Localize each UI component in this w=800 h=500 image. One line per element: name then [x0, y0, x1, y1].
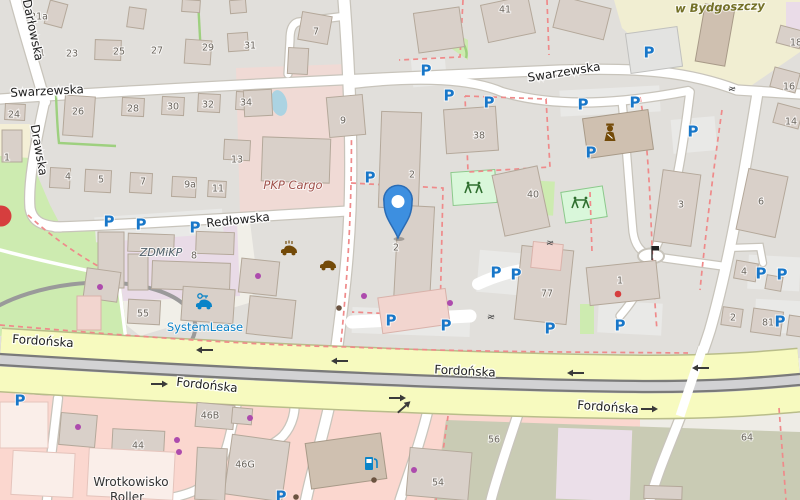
house-number-label: 44	[132, 441, 144, 452]
parking-icon: P	[484, 94, 495, 112]
building	[413, 7, 464, 53]
poi-dot-brown	[371, 477, 377, 483]
parking-icon: P	[444, 87, 455, 105]
parking-icon: P	[777, 266, 788, 284]
house-number-label: 16	[783, 82, 795, 93]
house-number-label: 29	[202, 43, 214, 54]
parking-icon: P	[136, 216, 147, 234]
house-number-label: 25	[113, 47, 125, 58]
parking-icon: P	[511, 266, 522, 284]
house-number-label: 18	[790, 38, 800, 49]
parking-icon: P	[545, 320, 556, 338]
parking-icon: P	[630, 94, 641, 112]
shop-poi-dot	[447, 300, 453, 306]
house-number-label: 1	[4, 153, 10, 164]
poi-dot-brown	[293, 494, 299, 500]
house-number-label: 54	[432, 478, 444, 489]
house-number-label: 26	[72, 107, 84, 118]
building	[406, 447, 472, 500]
house-number-label: 81	[762, 318, 774, 329]
building	[644, 485, 682, 499]
parking-icon: P	[421, 62, 432, 80]
house-number-label: 4	[65, 172, 71, 183]
shop-poi-dot	[174, 437, 180, 443]
house-number-label: 23	[66, 49, 78, 60]
area-label: Roller	[110, 490, 144, 500]
area-label: Wrotkowisko	[93, 475, 168, 489]
house-number-label: 77	[541, 289, 553, 300]
house-number-label: 4	[741, 267, 747, 278]
building	[128, 254, 148, 290]
parking-icon: P	[365, 169, 376, 187]
landuse-area	[580, 304, 594, 334]
building	[182, 0, 201, 13]
building	[77, 296, 101, 330]
house-number-label: 32	[202, 100, 214, 111]
building	[246, 296, 296, 339]
house-number-label: 64	[741, 433, 753, 444]
shop-poi-dot	[75, 424, 81, 430]
house-number-label: 27	[151, 46, 163, 57]
house-number-label: 2	[393, 243, 399, 254]
house-number-label: 6	[758, 197, 764, 208]
shop-poi-dot	[97, 284, 103, 290]
building	[444, 106, 499, 154]
parking-icon: P	[775, 313, 786, 331]
house-number-label: 28	[127, 104, 139, 115]
shop-poi-dot	[361, 293, 367, 299]
house-number-label: 34	[240, 98, 252, 109]
building	[787, 315, 800, 337]
house-number-label: 46B	[201, 411, 220, 422]
parking-icon: P	[276, 488, 287, 500]
area-label: ZDMiKP	[139, 246, 183, 259]
building	[229, 0, 246, 14]
parking-icon: P	[586, 144, 597, 162]
parking-icon: P	[578, 96, 589, 114]
area-label: SystemLease	[167, 320, 243, 334]
house-number-label: 1	[617, 276, 623, 287]
landuse-area	[556, 428, 632, 500]
house-number-label: 11	[212, 184, 224, 195]
house-number-label: 7	[140, 177, 146, 188]
house-number-label: 9a	[184, 180, 196, 191]
house-number-label: 41	[499, 5, 511, 16]
poi-dot-red	[615, 291, 622, 298]
house-number-label: 14	[785, 117, 797, 128]
shop-poi-dot	[255, 273, 261, 279]
house-number-label: 8	[191, 251, 197, 262]
house-number-label: 9	[340, 116, 346, 127]
house-number-label: 31	[244, 41, 256, 52]
building	[196, 231, 235, 254]
house-number-label: 3	[678, 200, 684, 211]
landuse-area	[451, 170, 497, 206]
building	[127, 7, 147, 29]
shop-poi-dot	[411, 467, 417, 473]
house-number-label: 7	[313, 27, 319, 38]
house-number-label: 2	[409, 170, 415, 181]
parking-icon: P	[615, 317, 626, 335]
parking-icon: P	[104, 213, 115, 231]
map-svg: ≠≠≠PPPPPPPPPPPPPPPPPPPPPPP21a21232527293…	[0, 0, 800, 500]
house-number-label: 30	[167, 102, 179, 113]
house-number-label: 2	[730, 313, 736, 324]
area-label: PKP Cargo	[263, 178, 322, 192]
map-canvas[interactable]: ≠≠≠PPPPPPPPPPPPPPPPPPPPPPP21a21232527293…	[0, 0, 800, 500]
shop-poi-dot	[176, 449, 182, 455]
house-number-label: 24	[8, 110, 20, 121]
house-number-label: 13	[231, 155, 243, 166]
parking-icon: P	[644, 44, 655, 62]
house-number-label: 46G	[235, 460, 254, 471]
building	[195, 447, 228, 500]
building	[287, 47, 308, 74]
poi-dot-brown	[336, 305, 342, 311]
building	[261, 137, 330, 183]
house-number-label: 38	[473, 131, 485, 142]
house-number-label: 40	[527, 190, 539, 201]
parking-icon: P	[441, 317, 452, 335]
house-number-label: 5	[98, 175, 104, 186]
parking-icon: P	[386, 312, 397, 330]
shop-poi-dot	[247, 415, 253, 421]
parking-icon: P	[688, 123, 699, 141]
parking-icon: P	[491, 264, 502, 282]
parking-icon: P	[190, 219, 201, 237]
building	[11, 450, 75, 497]
house-number-label: 55	[137, 309, 149, 320]
house-number-label: 56	[488, 435, 500, 446]
parking-icon: P	[756, 265, 767, 283]
parking-icon: P	[15, 392, 26, 410]
